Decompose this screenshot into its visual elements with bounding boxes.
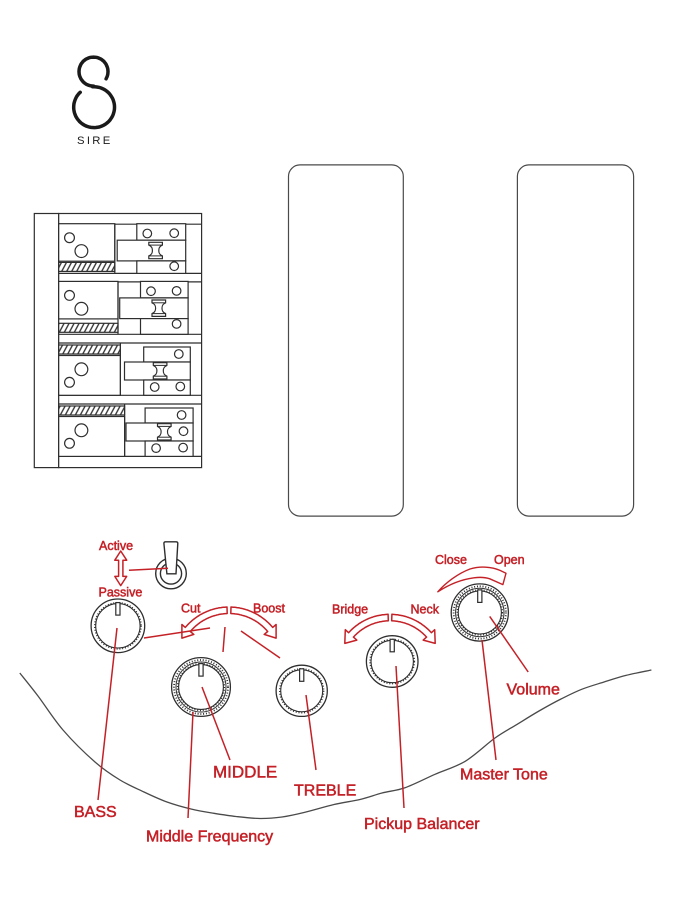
svg-text:TREBLE: TREBLE (294, 783, 356, 800)
svg-text:MIDDLE: MIDDLE (213, 763, 277, 782)
svg-text:Close: Close (435, 553, 467, 567)
svg-text:Volume: Volume (507, 682, 560, 699)
svg-text:Neck: Neck (411, 603, 440, 617)
svg-text:Bridge: Bridge (332, 603, 368, 617)
svg-text:Active: Active (99, 539, 133, 553)
svg-text:Open: Open (494, 553, 525, 567)
svg-text:SIRE: SIRE (77, 135, 113, 147)
svg-text:BASS: BASS (74, 804, 117, 821)
svg-text:Cut: Cut (181, 602, 201, 616)
svg-text:Master Tone: Master Tone (460, 767, 548, 784)
svg-text:Middle Frequency: Middle Frequency (146, 829, 273, 846)
svg-text:Boost: Boost (253, 602, 285, 616)
svg-text:Passive: Passive (99, 586, 143, 600)
svg-text:Pickup Balancer: Pickup Balancer (364, 816, 480, 833)
